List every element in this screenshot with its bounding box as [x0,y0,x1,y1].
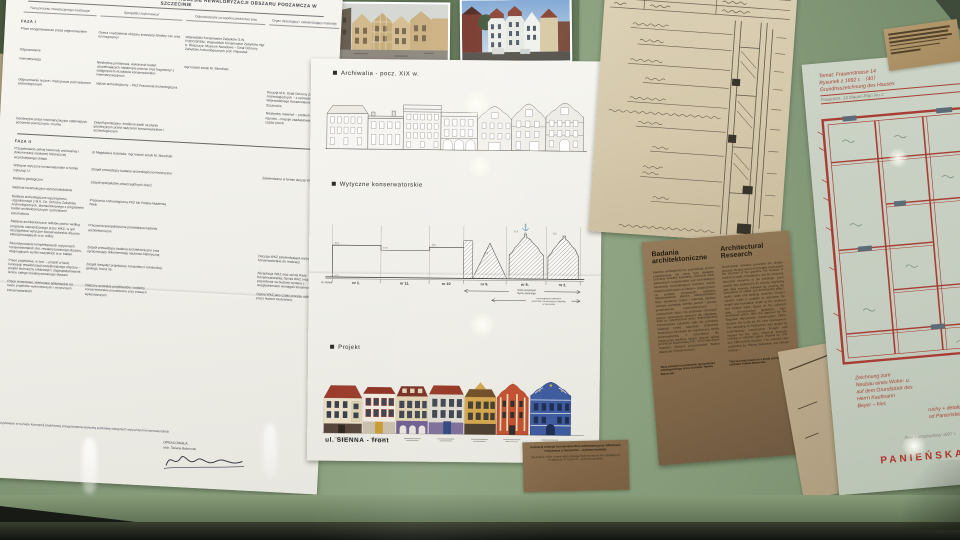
bullet-icon [330,345,334,349]
light-reflection [902,434,926,458]
research-title-pl: Badania architektoniczne [651,247,713,266]
conservation-guidelines-diagram: ⚓ 21,5 17,0 19,0 17,5 21,0 21,5 N. Rynek… [320,190,590,339]
phase-1-rows: Prace przygotowawcze przed odgruzowaniem… [15,26,328,145]
window-reflection [82,438,97,494]
plan-bottom-notes: Zeichnung zum Neubau eines Wohn- u. auf … [855,360,960,411]
conservation-process-chart: SCHEMAT POSTĘPOWANIA KONSERWATORSKIEGO W… [0,0,343,494]
svg-text:N. Rynek: N. Rynek [321,280,332,284]
sienna-elevations-content: Archiwalia - pocz. XIX w. [307,58,603,463]
svg-text:w Szczecinie: w Szczecinie [542,304,555,306]
historic-facades-drawing [322,79,591,174]
pencil-section-drawing [588,0,797,244]
pencil-section-drawing-image [588,0,797,244]
svg-text:21,5: 21,5 [553,233,558,235]
rebuilt-houses-photo-image [462,0,571,62]
svg-text:17,0: 17,0 [383,247,388,249]
svg-text:rozstrzygnięcia wykonane: rozstrzygnięcia wykonane [536,297,562,300]
signature-icon [162,449,249,475]
svg-text:nr 1.: nr 1. [352,281,360,285]
svg-text:21,0: 21,0 [514,231,519,233]
svg-text:nr 11.: nr 11. [400,282,410,286]
window-reflection [263,424,277,478]
svg-text:Rynku Siennego: Rynku Siennego [517,292,536,295]
light-reflection [888,148,908,168]
light-reflection [469,312,495,338]
svg-text:nr 8.: nr 8. [521,283,529,287]
svg-text:przez Woj. Konserwatora Zabytk: przez Woj. Konserwatora Zabytków [532,300,566,303]
light-reflection [468,154,492,178]
light-reflection [463,90,491,118]
chart-column-header: Specjaliści /wykonawcy/ [100,9,182,20]
svg-text:19,0: 19,0 [432,245,437,247]
chart-column-header: Faza procesu inwestycyjnego /realizacja/ [24,5,97,15]
research-body-en: Architectural research preceded the desi… [722,261,790,354]
research-note-pl: Tekst powstał na podstawie opracowania u… [660,361,722,376]
chart-column-header: Odpowiedzialni za współuczestnictwo prac [186,14,265,25]
caption-text-en: Illustration of the conservation strateg… [528,453,624,463]
corner-shade [880,460,960,530]
bullet-icon [333,71,337,75]
research-caption-card: Badania architektoniczne Architectural R… [641,231,806,466]
svg-text:nr 9.: nr 9. [481,282,489,286]
research-title-en: Architectural Research [720,241,782,260]
research-body-pl: Badania architektoniczne poprzedzały pro… [653,266,721,359]
chart-column-header: Organ decydujący i zatwierdzający materi… [269,18,339,28]
red-floor-plan-drawing [816,100,960,369]
street-label: ul. SIENNA - front [325,437,389,445]
svg-text:21,5: 21,5 [335,242,340,244]
research-caption-content: Badania architektoniczne Architectural R… [641,231,799,377]
svg-text:nr 2.: nr 2. [559,283,567,287]
svg-text:nr 10: nr 10 [442,282,451,286]
chart-footer-note: Uzyskiwane w tej fazie koncepcji projekt… [0,421,298,441]
bottom-caption-card: Ilustracja strategii konserwatorskiej re… [522,440,629,493]
table-front-edge [0,495,960,525]
section-wytyczne-heading: Wytyczne konserwatorskie [332,182,592,191]
table-bottom-shadow [0,522,960,540]
sienna-elevations-sheet: Archiwalia - pocz. XIX w. [307,58,603,463]
anchor-icon: ⚓ [522,224,530,232]
construction-photo-image [334,4,448,62]
rebuilt-houses-photo [460,0,573,69]
bullet-icon [332,182,336,186]
exhibit-display-case: SCHEMAT POSTĘPOWANIA KONSERWATORSKIEGO W… [0,0,960,540]
conservation-process-chart-content: SCHEMAT POSTĘPOWANIA KONSERWATORSKIEGO W… [0,0,343,494]
author-signature-block: OPRACOWAŁA: arch. Tatiana Balcerzak [162,440,274,478]
